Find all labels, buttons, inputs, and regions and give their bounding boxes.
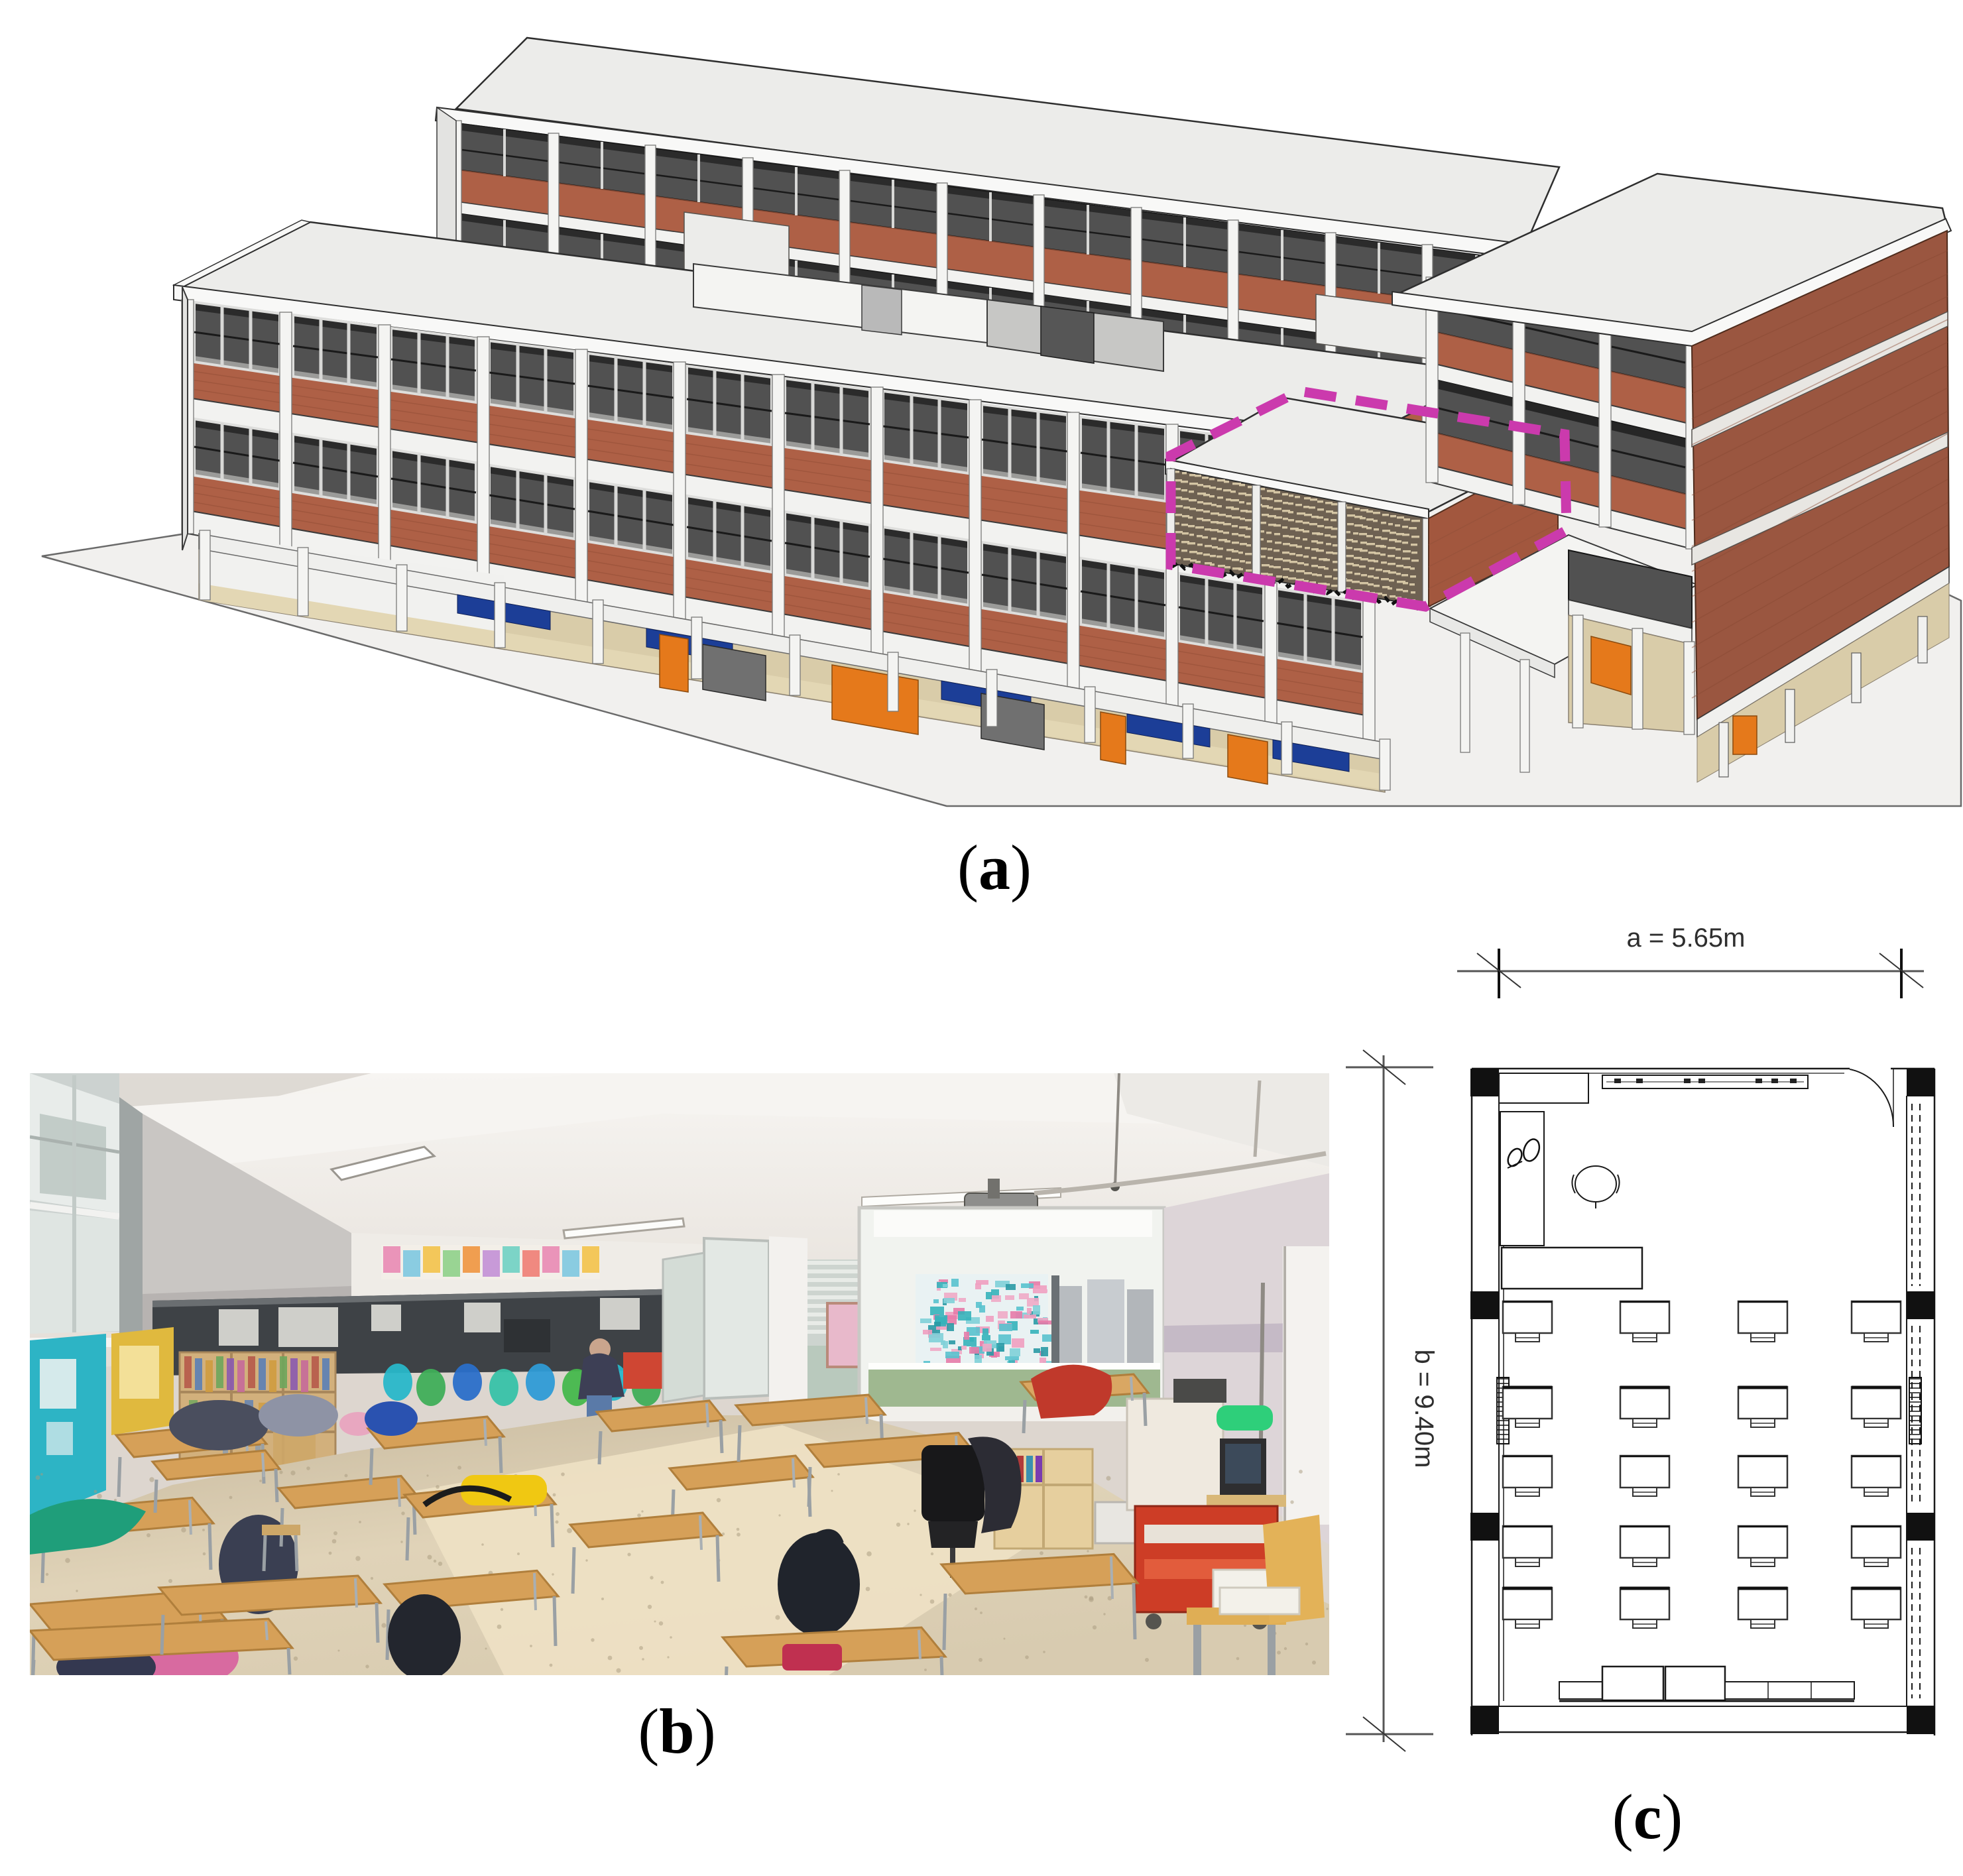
svg-text:a = 5.65m: a = 5.65m bbox=[1626, 923, 1745, 953]
svg-text:(b): (b) bbox=[638, 1696, 715, 1767]
svg-text:(c): (c) bbox=[1612, 1781, 1683, 1852]
svg-text:(a): (a) bbox=[957, 832, 1032, 903]
svg-text:b = 9.40m: b = 9.40m bbox=[1409, 1349, 1439, 1468]
